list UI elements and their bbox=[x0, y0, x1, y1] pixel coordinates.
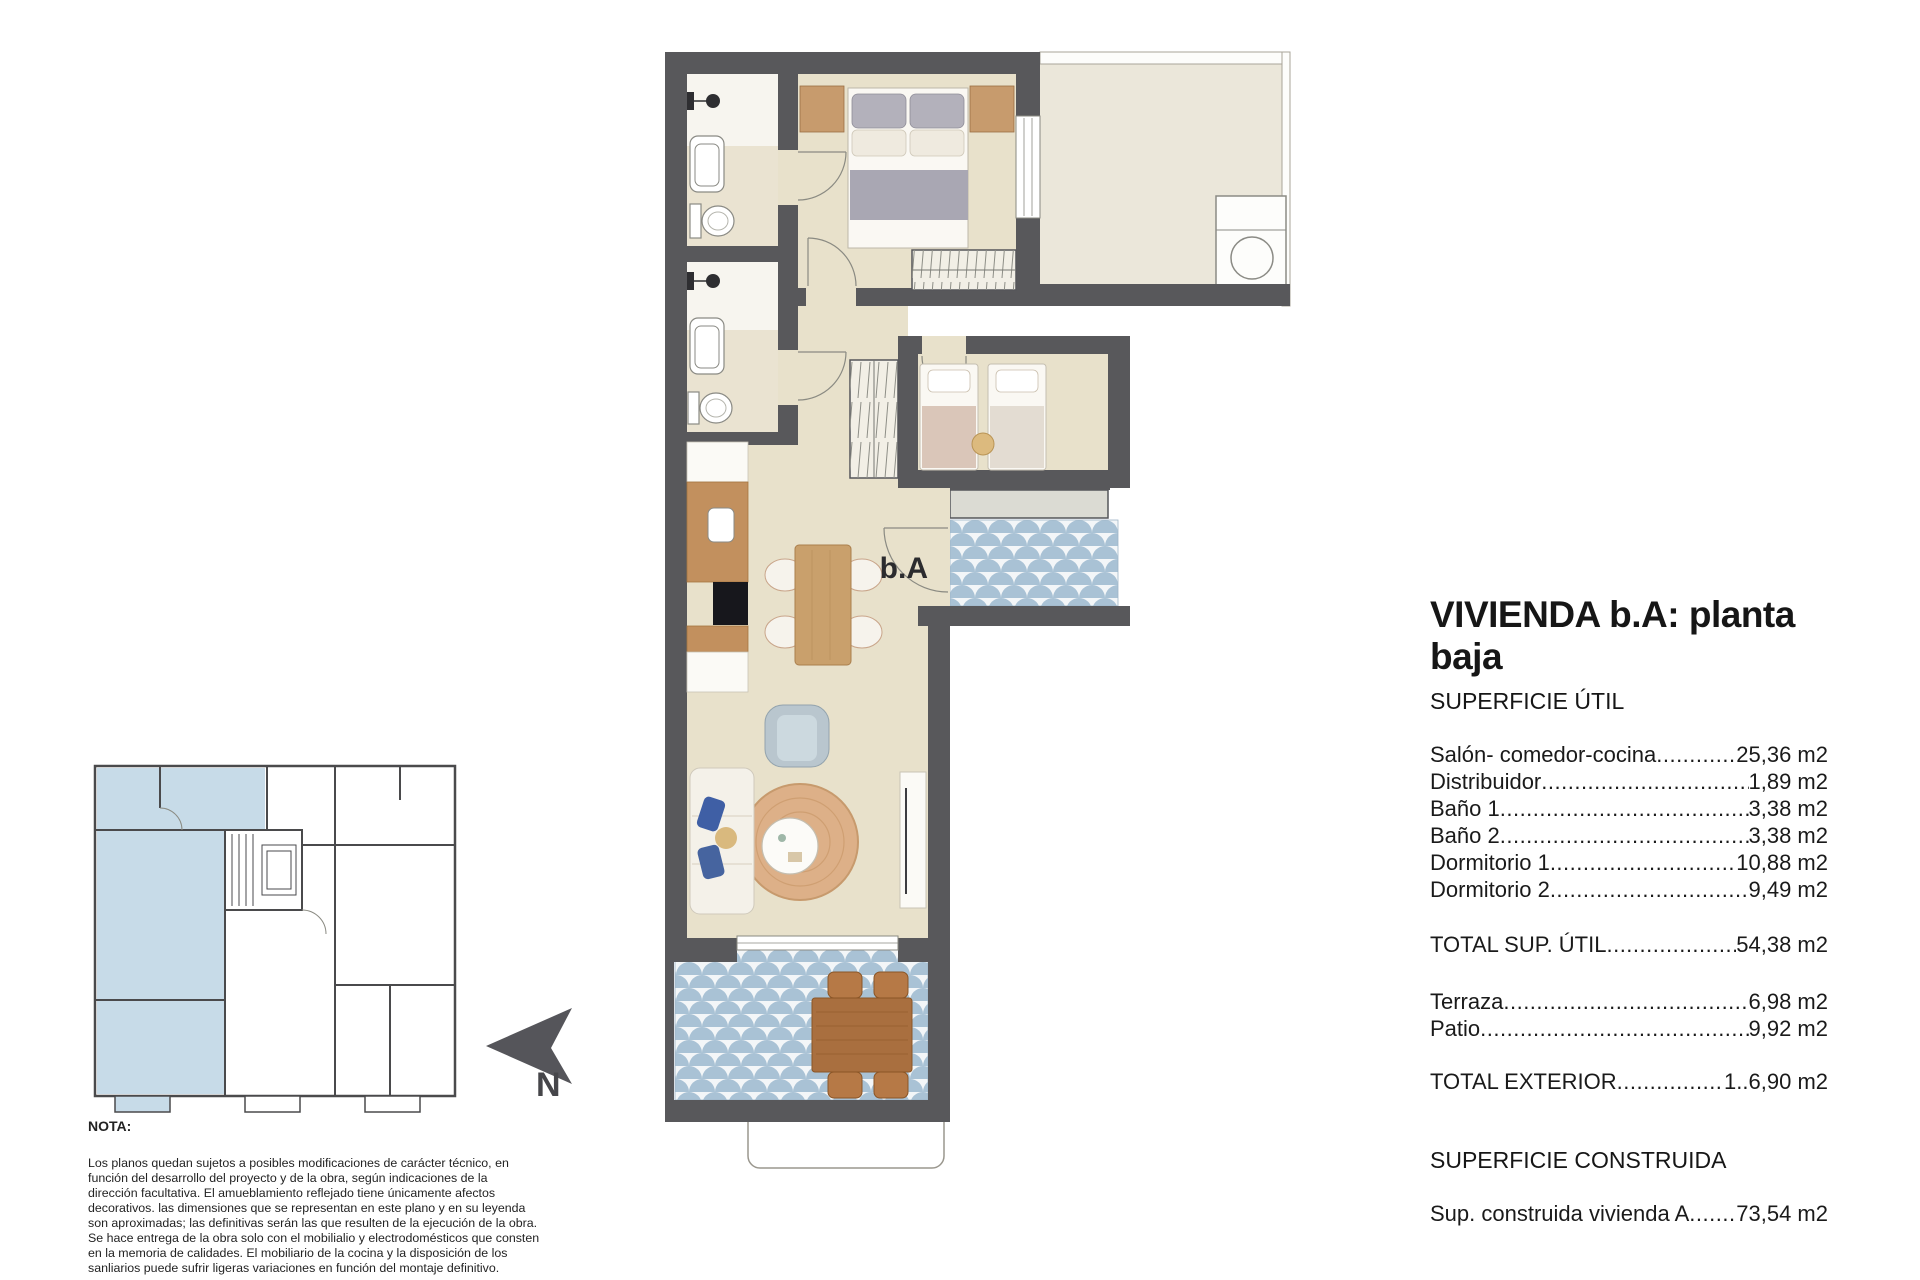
entrance-label: b.A bbox=[880, 552, 928, 585]
outdoor-chair bbox=[874, 1072, 908, 1098]
area-label: Sup. construida vivienda A bbox=[1430, 1200, 1689, 1227]
area-row: Baño 2 .................................… bbox=[1430, 822, 1828, 849]
area-label: TOTAL EXTERIOR bbox=[1430, 1068, 1617, 1095]
pillow bbox=[715, 827, 737, 849]
area-row: Distribuidor ...........................… bbox=[1430, 768, 1828, 795]
area-value: 9,92 m2 bbox=[1749, 1015, 1829, 1042]
wall bbox=[918, 606, 1130, 626]
area-label: Patio bbox=[1430, 1015, 1480, 1042]
area-label: Salón- comedor-cocina bbox=[1430, 741, 1656, 768]
bedside-table bbox=[972, 433, 994, 455]
area-label: Distribuidor bbox=[1430, 768, 1541, 795]
kitchen-counter bbox=[687, 442, 748, 692]
superficie-construida-heading: SUPERFICIE CONSTRUIDA bbox=[1430, 1147, 1828, 1174]
util-rows: Salón- comedor-cocina ..................… bbox=[1430, 741, 1828, 903]
wall bbox=[665, 246, 798, 262]
nightstand bbox=[800, 86, 844, 132]
wall bbox=[665, 52, 1040, 74]
leader-dots: ........................................… bbox=[1550, 849, 1736, 876]
wall bbox=[778, 262, 798, 432]
area-value: 25,36 m2 bbox=[1736, 741, 1828, 768]
nightstand bbox=[970, 86, 1014, 132]
leader-dots: ........................................… bbox=[1656, 741, 1736, 768]
wall bbox=[1037, 284, 1290, 306]
area-value: 1,89 m2 bbox=[1749, 768, 1829, 795]
total-util-row: TOTAL SUP. ÚTIL ........................… bbox=[1430, 931, 1828, 958]
wall bbox=[1108, 336, 1130, 488]
outdoor-table bbox=[812, 998, 912, 1072]
wall bbox=[1016, 74, 1040, 118]
surface-panel: VIVIENDA b.A: planta baja SUPERFICIE ÚTI… bbox=[1430, 594, 1828, 1227]
area-row: Patio ..................................… bbox=[1430, 1015, 1828, 1042]
area-value: 10,88 m2 bbox=[1736, 849, 1828, 876]
area-value: 3,38 m2 bbox=[1749, 822, 1829, 849]
north-arrow: N bbox=[486, 1008, 572, 1104]
wall bbox=[928, 626, 950, 1122]
superficie-util-heading: SUPERFICIE ÚTIL bbox=[1430, 688, 1828, 715]
bedroom-window bbox=[1016, 116, 1040, 218]
page-title: VIVIENDA b.A: planta baja bbox=[1430, 594, 1828, 678]
bedroom-2-furniture bbox=[850, 360, 1046, 478]
leader-dots: ........................................… bbox=[1689, 1200, 1736, 1227]
area-row: Salón- comedor-cocina ..................… bbox=[1430, 741, 1828, 768]
leader-dots: ........................................… bbox=[1550, 876, 1749, 903]
wardrobe bbox=[912, 250, 1016, 290]
tv-unit bbox=[900, 772, 926, 908]
kitchen-sink bbox=[708, 508, 734, 542]
leader-dots: ........................................… bbox=[1500, 822, 1749, 849]
coffee-table bbox=[762, 818, 818, 874]
area-value: 73,54 m2 bbox=[1736, 1200, 1828, 1227]
double-bed bbox=[848, 88, 968, 248]
area-label: Dormitorio 2 bbox=[1430, 876, 1550, 903]
note-block: NOTA: Los planos quedan sujetos a posibl… bbox=[88, 1118, 540, 1276]
wall bbox=[665, 52, 687, 942]
north-label: N bbox=[536, 1066, 561, 1104]
leader-dots: ........................................… bbox=[1480, 1015, 1748, 1042]
area-value: 54,38 m2 bbox=[1736, 931, 1828, 958]
leader-dots: ........................................… bbox=[1503, 988, 1748, 1015]
area-row: Terraza ................................… bbox=[1430, 988, 1828, 1015]
wall bbox=[665, 962, 674, 1102]
total-exterior-row: TOTAL EXTERIOR .........................… bbox=[1430, 1068, 1828, 1095]
armchair bbox=[765, 705, 829, 767]
dining-table bbox=[795, 545, 851, 665]
leader-dots: ........................................… bbox=[1606, 931, 1736, 958]
single-bed bbox=[988, 364, 1046, 470]
sofa bbox=[690, 768, 754, 914]
outdoor-chair bbox=[874, 972, 908, 998]
cooktop bbox=[713, 582, 748, 625]
wall bbox=[950, 478, 1110, 490]
patio-counter bbox=[1216, 196, 1286, 288]
area-value: 9,49 m2 bbox=[1749, 876, 1829, 903]
area-label: Baño 2 bbox=[1430, 822, 1500, 849]
key-plan-terraces bbox=[115, 1096, 420, 1112]
wall bbox=[665, 1100, 950, 1122]
entry-step bbox=[950, 490, 1108, 518]
wall bbox=[665, 938, 737, 962]
area-value: 6,98 m2 bbox=[1749, 988, 1829, 1015]
toilet bbox=[688, 392, 732, 424]
leader-dots: ........................................… bbox=[1617, 1068, 1724, 1095]
wall bbox=[898, 938, 932, 962]
leader-dots: ........................................… bbox=[1541, 768, 1748, 795]
construida-row: Sup. construida vivienda A .............… bbox=[1430, 1200, 1828, 1227]
patio-area bbox=[1040, 52, 1290, 306]
wardrobe bbox=[850, 360, 898, 478]
area-label: Dormitorio 1 bbox=[1430, 849, 1550, 876]
key-plan: N bbox=[60, 740, 620, 1140]
area-value: 1..6,90 m2 bbox=[1724, 1068, 1828, 1095]
note-heading: NOTA: bbox=[88, 1118, 540, 1134]
side-patio-tiles bbox=[950, 520, 1118, 606]
leader-dots: ........................................… bbox=[1500, 795, 1749, 822]
area-row: Dormitorio 1 ...........................… bbox=[1430, 849, 1828, 876]
sink bbox=[690, 136, 724, 192]
single-bed bbox=[920, 364, 978, 470]
main-floor-plan: b.A bbox=[600, 30, 1320, 1200]
toilet bbox=[690, 204, 734, 238]
area-label: Baño 1 bbox=[1430, 795, 1500, 822]
outdoor-chair bbox=[828, 1072, 862, 1098]
outdoor-chair bbox=[828, 972, 862, 998]
area-label: Terraza bbox=[1430, 988, 1503, 1015]
note-body: Los planos quedan sujetos a posibles mod… bbox=[88, 1156, 540, 1276]
area-row: Dormitorio 2 ...........................… bbox=[1430, 876, 1828, 903]
area-value: 3,38 m2 bbox=[1749, 795, 1829, 822]
sink bbox=[690, 318, 724, 374]
area-row: Baño 1 .................................… bbox=[1430, 795, 1828, 822]
patio-sink-circle bbox=[1231, 237, 1273, 279]
bathroom-1-floor bbox=[687, 74, 778, 146]
wall bbox=[898, 336, 918, 488]
area-label: TOTAL SUP. ÚTIL bbox=[1430, 931, 1606, 958]
